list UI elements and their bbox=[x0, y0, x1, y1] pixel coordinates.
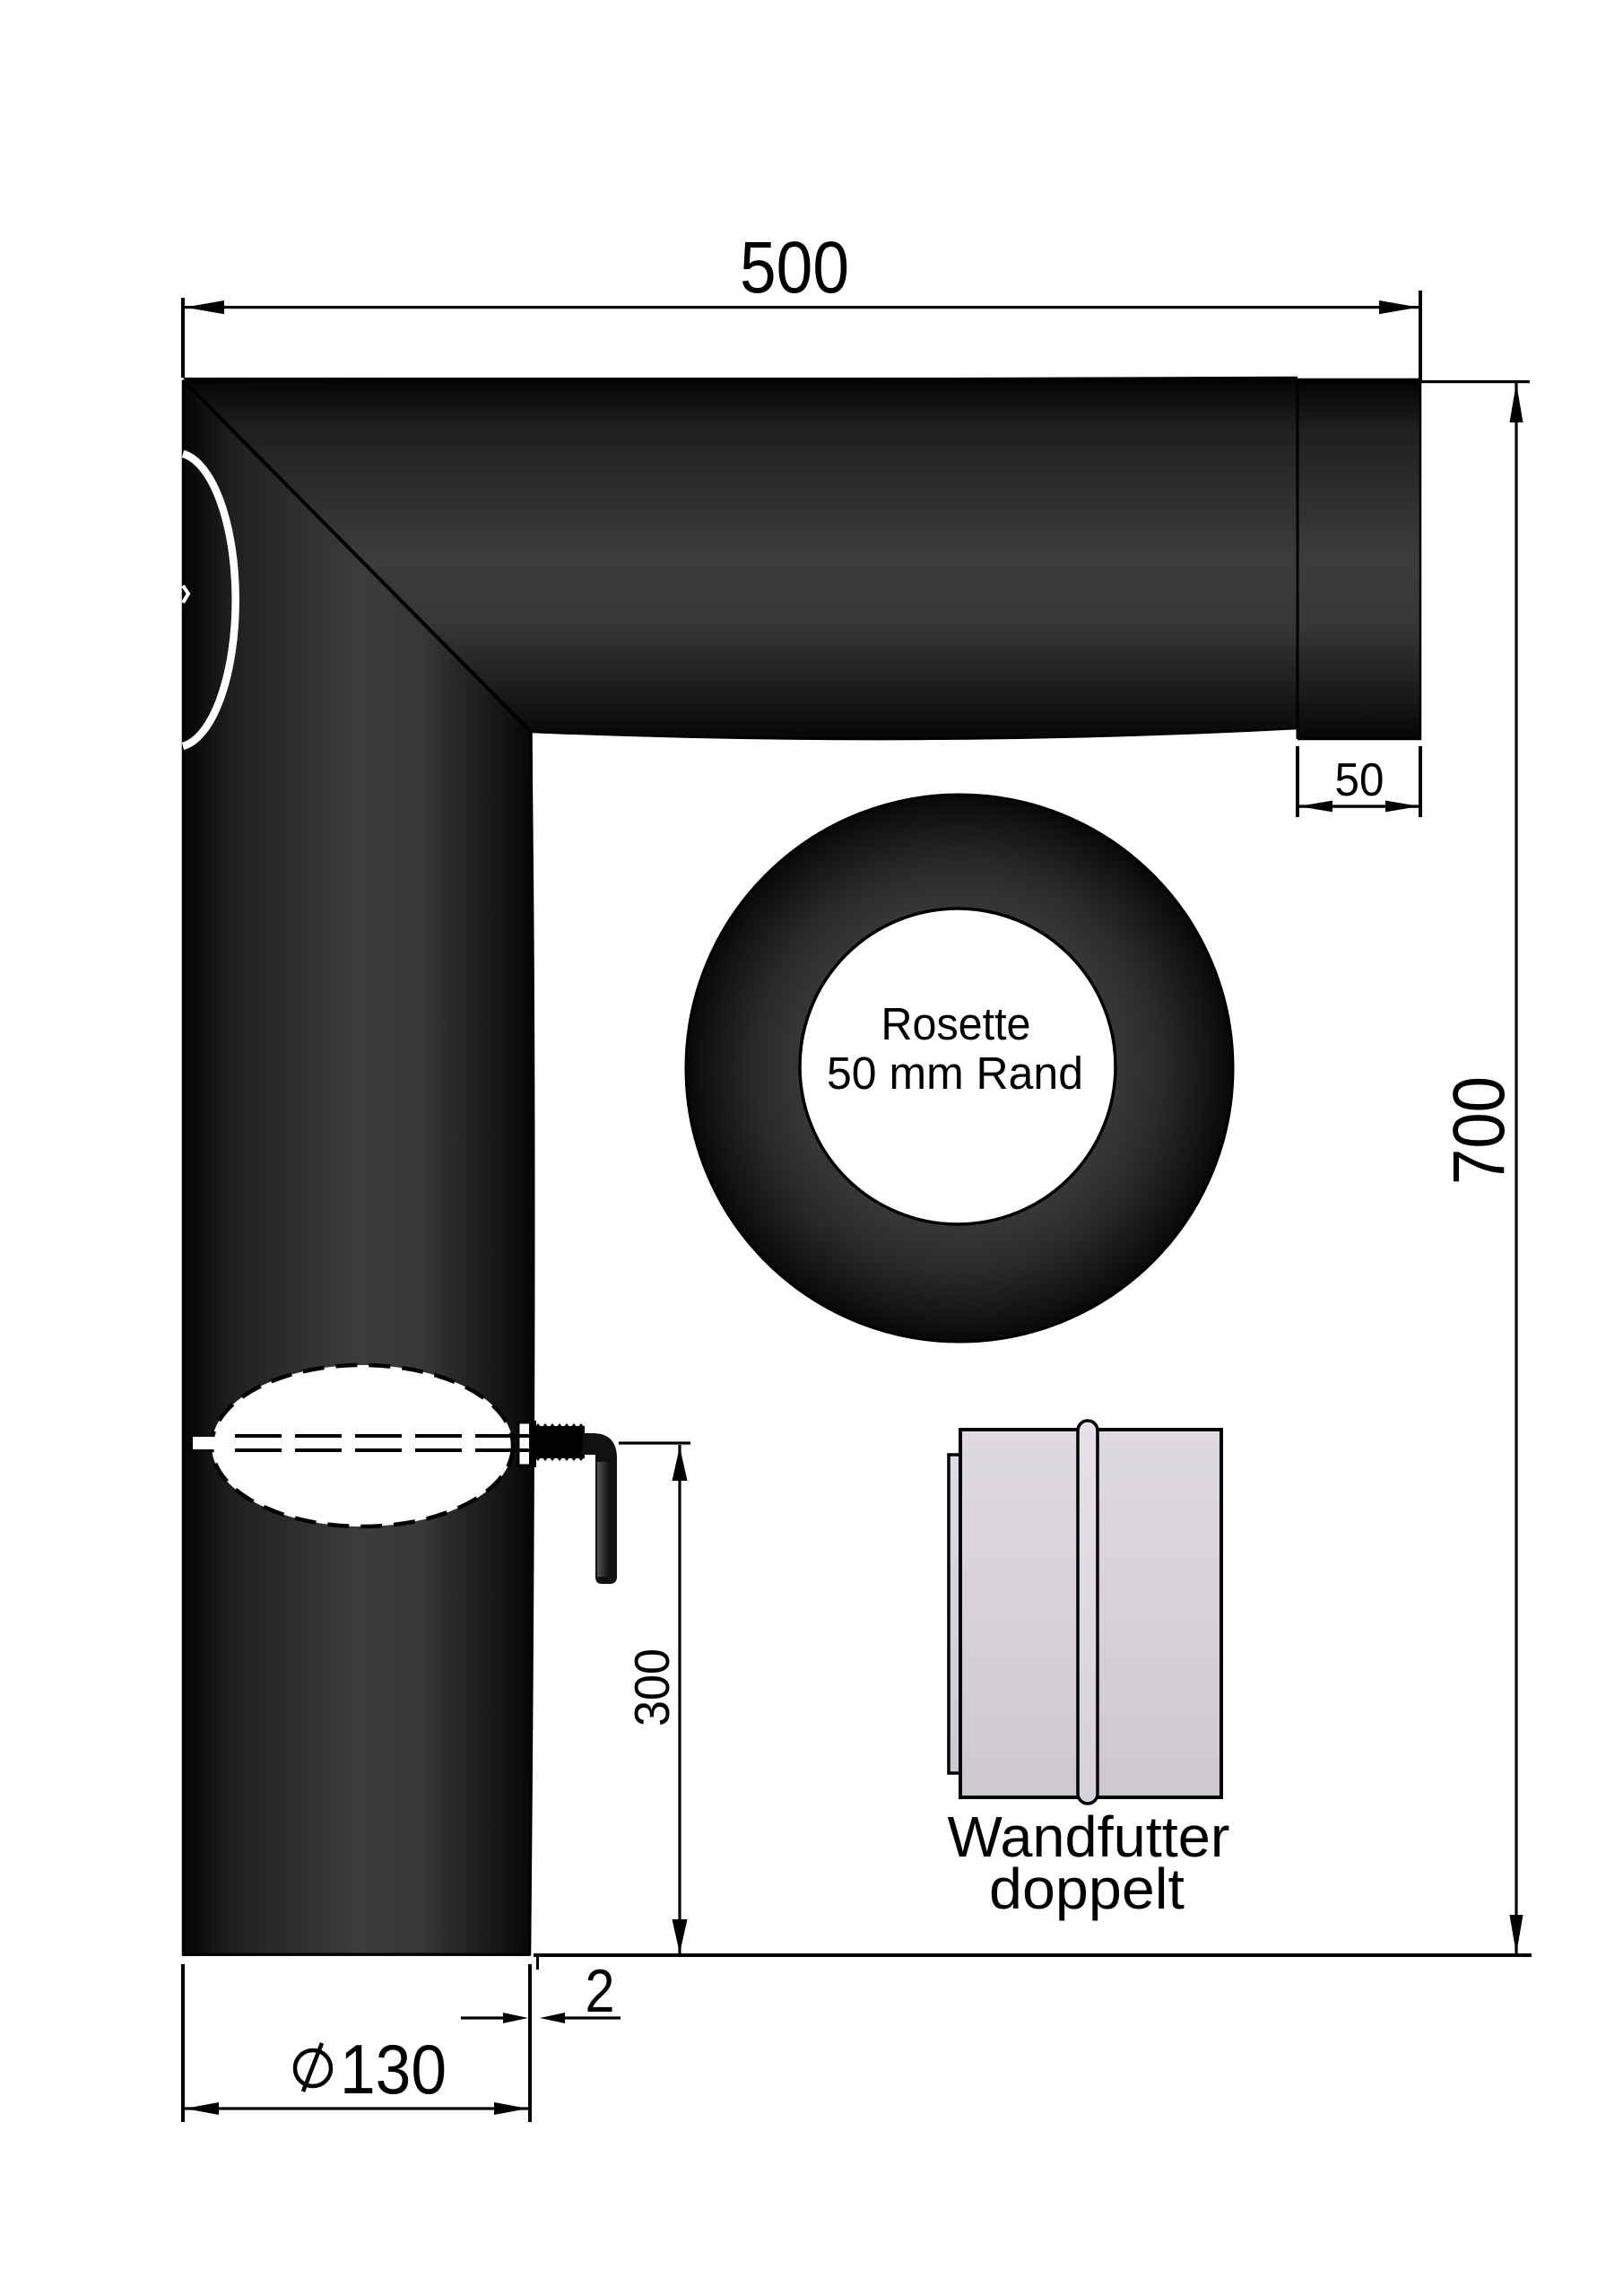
svg-text:130: 130 bbox=[340, 2030, 447, 2109]
svg-text:doppelt: doppelt bbox=[989, 1857, 1185, 1921]
svg-text:50 mm Rand: 50 mm Rand bbox=[827, 1048, 1083, 1099]
svg-text:Rosette: Rosette bbox=[881, 998, 1031, 1049]
svg-text:50: 50 bbox=[1335, 754, 1384, 806]
svg-text:2: 2 bbox=[586, 1957, 615, 2025]
svg-text:300: 300 bbox=[624, 1648, 680, 1726]
svg-text:700: 700 bbox=[1438, 1076, 1520, 1185]
svg-text:500: 500 bbox=[740, 227, 849, 309]
